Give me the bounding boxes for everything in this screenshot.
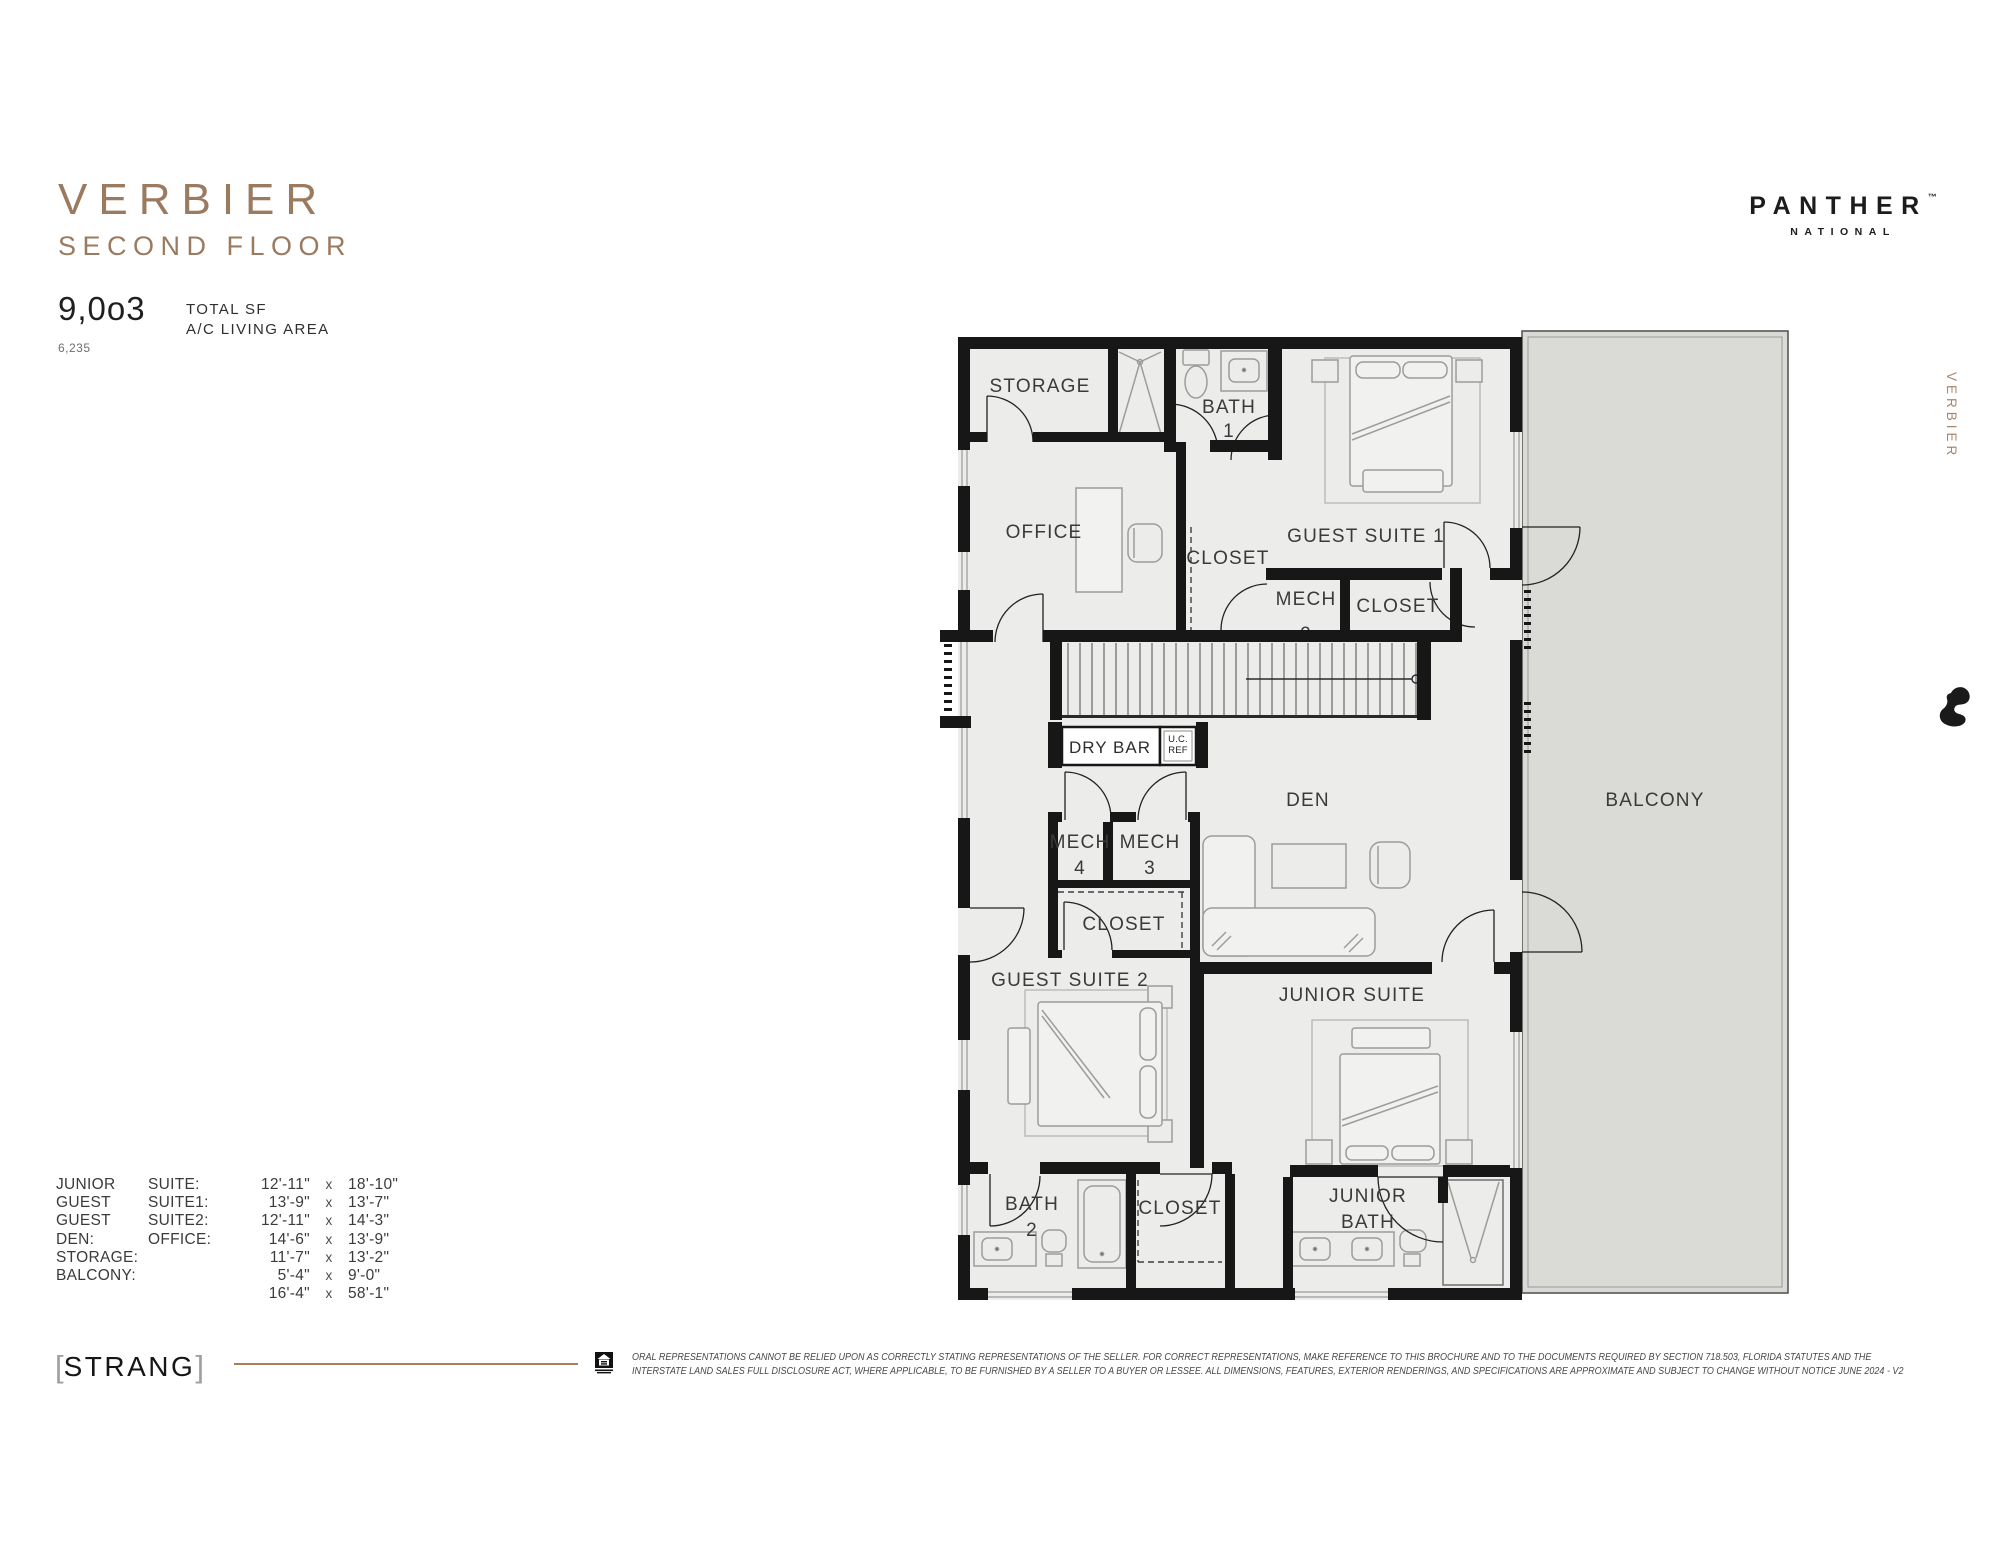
dim-length: 14'-3" bbox=[348, 1212, 428, 1230]
trademark-symbol: ™ bbox=[1928, 192, 1937, 202]
panther-national-logo: PANTHER™ NATIONAL bbox=[1733, 192, 1953, 238]
room-label-mech4: MECH bbox=[1050, 832, 1111, 853]
sf-labels: TOTAL SF A/C LIVING AREA bbox=[186, 300, 330, 340]
dim-length: 13'-2" bbox=[348, 1249, 428, 1267]
dim-length: 13'-7" bbox=[348, 1194, 428, 1212]
side-vertical-label: VERBIER bbox=[1944, 372, 1959, 459]
dim-label-b bbox=[148, 1285, 248, 1303]
dim-x: x bbox=[310, 1249, 348, 1267]
brand-name-text: PANTHER bbox=[1749, 192, 1927, 220]
room-label-bath1: BATH bbox=[1202, 397, 1256, 418]
dim-x: x bbox=[310, 1212, 348, 1230]
dim-label-a: DEN: bbox=[56, 1231, 148, 1249]
dim-label-a: GUEST bbox=[56, 1194, 148, 1212]
room-label-balcony: BALCONY bbox=[1605, 790, 1704, 811]
page-title: VERBIER bbox=[58, 178, 352, 222]
room-label-ucref-1: U.C. bbox=[1168, 734, 1188, 745]
room-label-closet-gs2: CLOSET bbox=[1082, 914, 1165, 935]
balcony-floor bbox=[1522, 331, 1788, 1293]
room-label-closet-office: CLOSET bbox=[1186, 548, 1269, 569]
dim-width: 12'-11" bbox=[248, 1212, 310, 1230]
room-label-closet-gs1: CLOSET bbox=[1356, 596, 1439, 617]
dim-label-b: SUITE1: bbox=[148, 1194, 248, 1212]
floor-plan: STORAGE BATH 1 GUEST SUITE 1 OFFICE CLOS… bbox=[940, 262, 1820, 1320]
room-label-office: OFFICE bbox=[1006, 522, 1083, 543]
dim-label-a: BALCONY: bbox=[56, 1267, 148, 1285]
room-label-junior-suite: JUNIOR SUITE bbox=[1279, 985, 1425, 1006]
dim-label-b: OFFICE: bbox=[148, 1231, 248, 1249]
ac-living-label: A/C LIVING AREA bbox=[186, 320, 330, 340]
dimension-row: 16'-4"x58'-1" bbox=[56, 1285, 428, 1303]
dim-length: 9'-0" bbox=[348, 1267, 428, 1285]
room-label-storage: STORAGE bbox=[990, 376, 1091, 397]
room-label-ucref-2: REF bbox=[1168, 745, 1188, 756]
strang-logo-text: STRANG bbox=[64, 1351, 196, 1382]
dim-width: 12'-11" bbox=[248, 1176, 310, 1194]
room-label-bath2-num: 2 bbox=[1026, 1220, 1038, 1241]
room-label-dry-bar: DRY BAR bbox=[1069, 738, 1151, 757]
dim-x: x bbox=[310, 1194, 348, 1212]
dim-label-a: GUEST bbox=[56, 1212, 148, 1230]
panther-head-icon bbox=[1936, 684, 1976, 736]
dim-label-b: SUITE: bbox=[148, 1176, 248, 1194]
wall-over-mech2 bbox=[1283, 630, 1331, 642]
room-label-junior-bath-1: JUNIOR bbox=[1329, 1186, 1407, 1207]
dim-label-b bbox=[148, 1267, 248, 1285]
dimension-row: STORAGE:11'-7"x13'-2" bbox=[56, 1249, 428, 1267]
dim-x: x bbox=[310, 1267, 348, 1285]
room-label-mech2: MECH bbox=[1276, 589, 1337, 610]
room-label-mech3-num: 3 bbox=[1144, 858, 1156, 879]
strang-bracket-left: [ bbox=[55, 1349, 64, 1384]
dimension-row: GUESTSUITE1:13'-9"x13'-7" bbox=[56, 1194, 428, 1212]
room-label-guest-suite-2: GUEST SUITE 2 bbox=[991, 970, 1149, 991]
dimension-row: DEN:OFFICE:14'-6"x13'-9" bbox=[56, 1231, 428, 1249]
ac-living-value: 6,235 bbox=[58, 341, 352, 355]
room-label-junior-bath-2: BATH bbox=[1341, 1212, 1395, 1233]
dim-x: x bbox=[310, 1285, 348, 1303]
strang-logo: [STRANG] bbox=[55, 1349, 204, 1385]
total-sf-label: TOTAL SF bbox=[186, 300, 330, 320]
legal-disclaimer-line2: INTERSTATE LAND SALES FULL DISCLOSURE AC… bbox=[632, 1365, 1577, 1379]
dim-label-b: SUITE2: bbox=[148, 1212, 248, 1230]
dim-width: 14'-6" bbox=[248, 1231, 310, 1249]
strang-bracket-right: ] bbox=[195, 1349, 204, 1384]
legal-disclaimer-line1: ORAL REPRESENTATIONS CANNOT BE RELIED UP… bbox=[632, 1351, 1577, 1365]
legal-disclaimer: ORAL REPRESENTATIONS CANNOT BE RELIED UP… bbox=[632, 1351, 1577, 1378]
dimension-row: BALCONY:5'-4"x9'-0" bbox=[56, 1267, 428, 1285]
dimensions-table: JUNIORSUITE:12'-11"x18'-10" GUESTSUITE1:… bbox=[56, 1176, 428, 1303]
dim-x: x bbox=[310, 1231, 348, 1249]
equal-housing-icon bbox=[594, 1352, 614, 1374]
dim-width: 16'-4" bbox=[248, 1285, 310, 1303]
room-label-guest-suite-1: GUEST SUITE 1 bbox=[1287, 526, 1445, 547]
footer-divider-line bbox=[234, 1363, 578, 1365]
dim-width: 5'-4" bbox=[248, 1267, 310, 1285]
dim-length: 18'-10" bbox=[348, 1176, 428, 1194]
dim-label-a: JUNIOR bbox=[56, 1176, 148, 1194]
room-label-mech4-num: 4 bbox=[1074, 858, 1086, 879]
room-label-closet-bottom: CLOSET bbox=[1138, 1198, 1221, 1219]
room-label-bath2: BATH bbox=[1005, 1194, 1059, 1215]
dim-width: 11'-7" bbox=[248, 1249, 310, 1267]
page-subtitle: SECOND FLOOR bbox=[58, 231, 352, 262]
dimension-row: GUESTSUITE2:12'-11"x14'-3" bbox=[56, 1212, 428, 1230]
dim-label-b bbox=[148, 1249, 248, 1267]
brand-subname: NATIONAL bbox=[1733, 226, 1953, 238]
dim-length: 13'-9" bbox=[348, 1231, 428, 1249]
dimension-row: JUNIORSUITE:12'-11"x18'-10" bbox=[56, 1176, 428, 1194]
room-label-den: DEN bbox=[1286, 790, 1330, 811]
dim-label-a: STORAGE: bbox=[56, 1249, 148, 1267]
brand-name: PANTHER™ bbox=[1733, 192, 1953, 221]
room-label-mech3: MECH bbox=[1120, 832, 1181, 853]
dim-width: 13'-9" bbox=[248, 1194, 310, 1212]
dim-label-a bbox=[56, 1285, 148, 1303]
room-label-bath1-num: 1 bbox=[1223, 421, 1235, 442]
dim-x: x bbox=[310, 1176, 348, 1194]
dim-length: 58'-1" bbox=[348, 1285, 428, 1303]
